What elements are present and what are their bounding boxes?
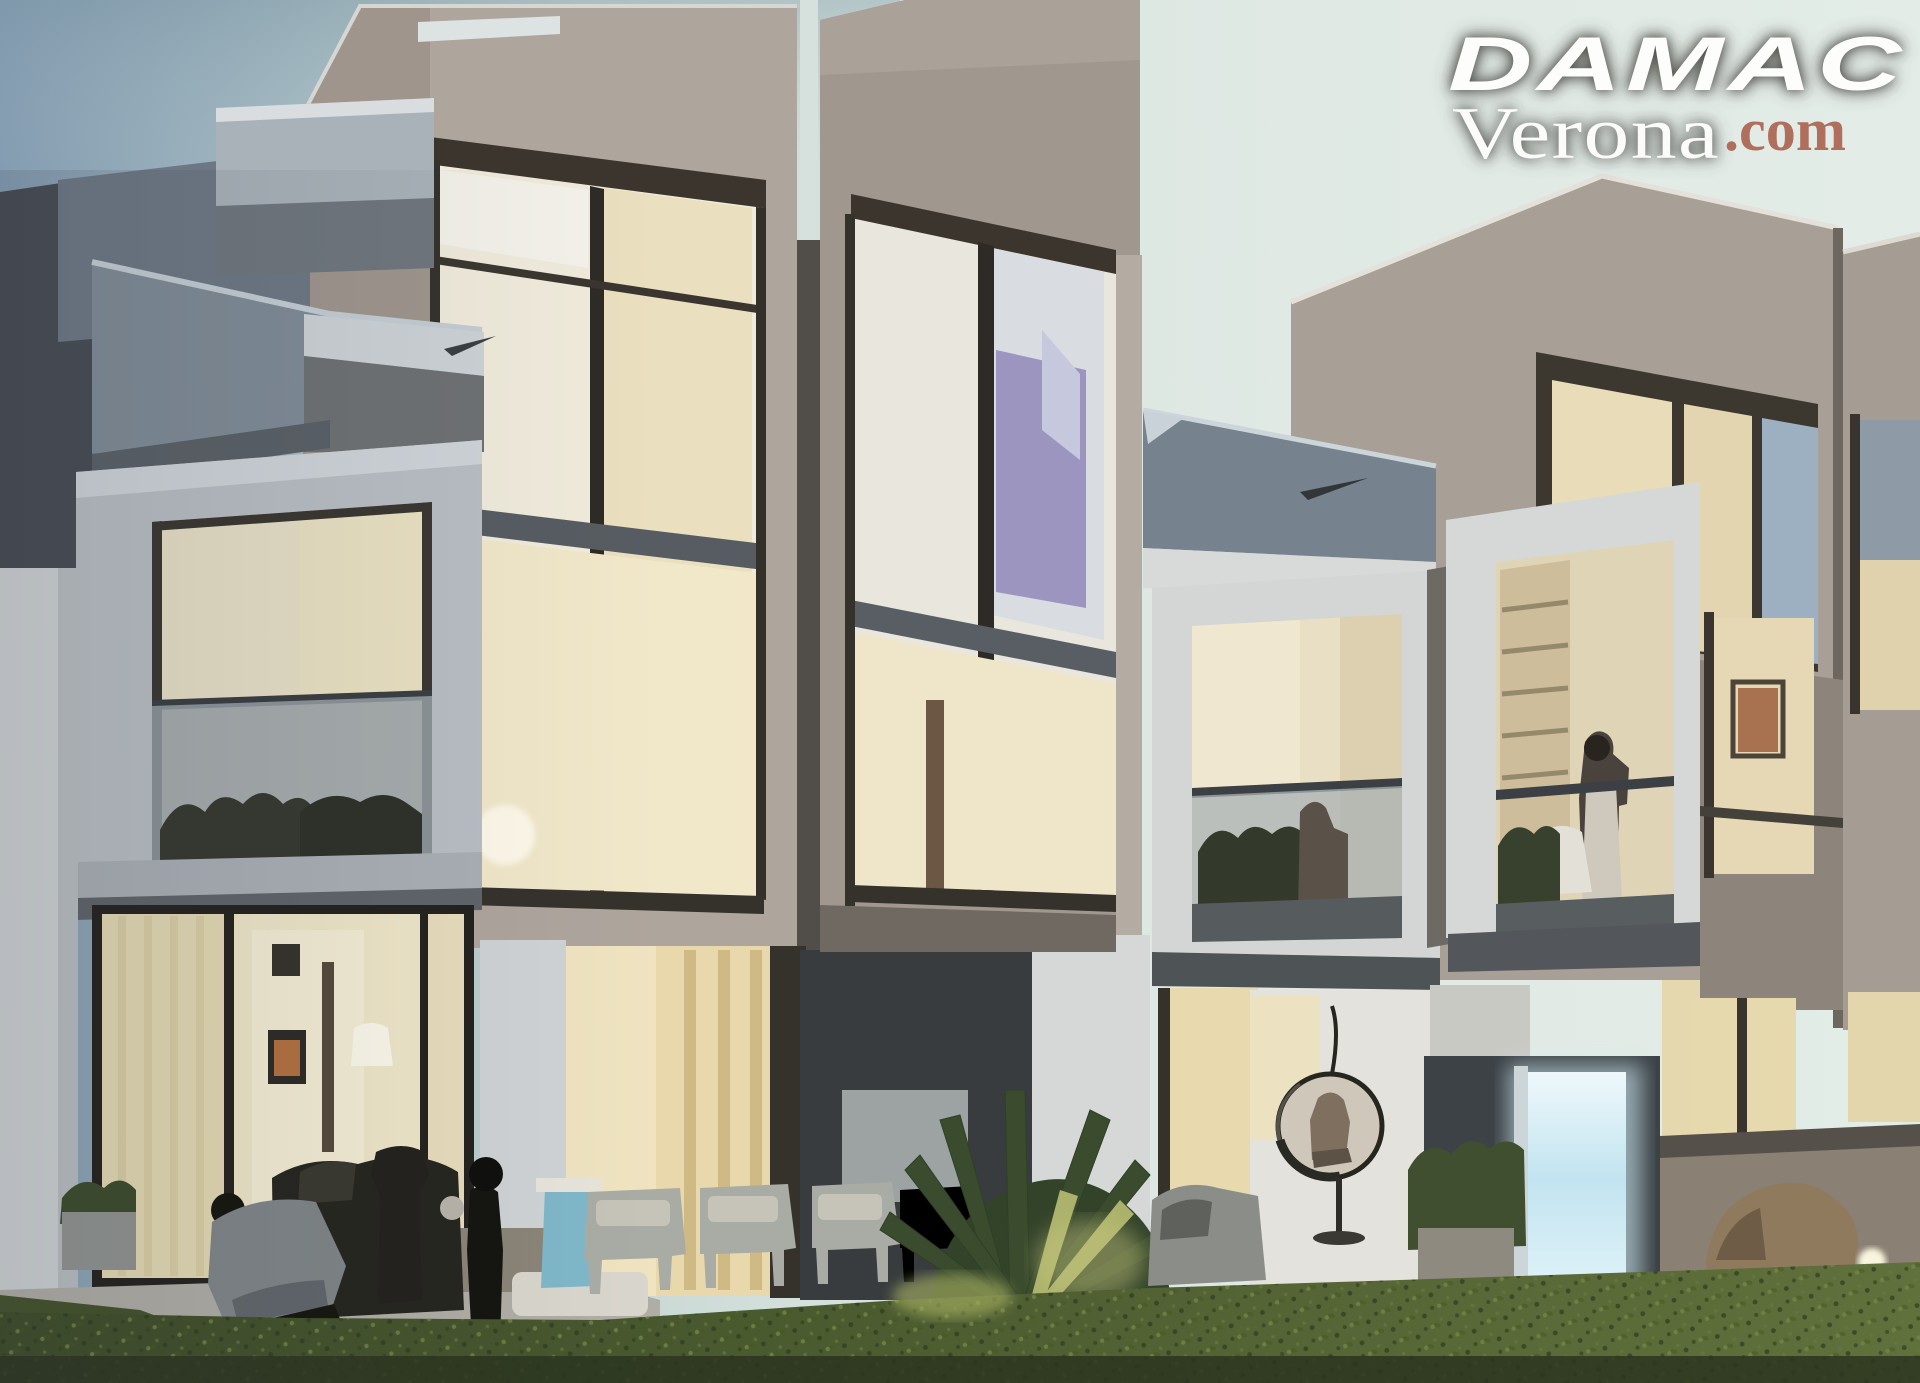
svg-text:Verona: Verona: [1452, 93, 1720, 175]
svg-text:.com: .com: [1724, 97, 1846, 163]
